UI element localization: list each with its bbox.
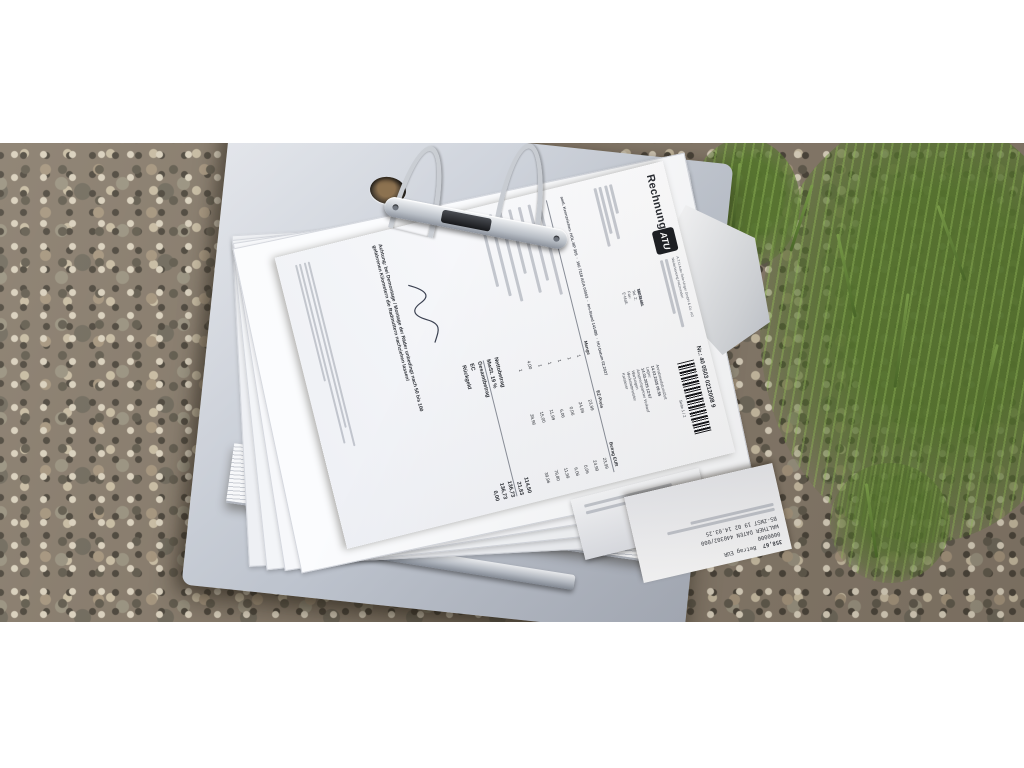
total-label: Nettobetrag <box>491 356 506 388</box>
item-amount: 0,06 <box>568 415 590 475</box>
item-qty: 1 <box>545 323 562 364</box>
item-amount: 79,80 <box>539 422 561 482</box>
item-amount: 24,99 <box>577 412 599 472</box>
total-mwst: MwSt. 19 % 21,83 <box>484 358 526 496</box>
folded-paper <box>570 468 713 560</box>
total-netto: Nettobetrag 114,50 <box>491 356 533 494</box>
total-value: 21,83 <box>514 481 525 496</box>
total-label: Rückgeld <box>459 364 473 390</box>
blurred-item-desc <box>499 212 524 302</box>
customer-no-label-text: Kundennr. <box>636 288 645 307</box>
km-value: 141489 <box>591 322 599 336</box>
ec-receipt: 358,67 Betrag EUR 0000000 WALTHER DATEN … <box>624 463 792 583</box>
plate-value: HOL-NP 305 <box>569 232 579 256</box>
meta-annahme-value: 14.03.2025 09:55 <box>650 365 678 459</box>
blurred-text-line <box>660 260 676 314</box>
meta-ansprechpartner: Ansprechpartner Verkauf <box>635 369 663 463</box>
hu-value: 02.2027 <box>601 361 609 376</box>
binder-clamp-bar <box>383 195 569 250</box>
grass-blade <box>732 163 742 228</box>
blurred-item-desc <box>538 202 564 295</box>
item-unit-price: 24,99 <box>564 359 585 414</box>
part-number: 160 7118 AGA 00003 <box>575 260 589 298</box>
blurred-text-line <box>295 265 326 382</box>
blurred-text-line <box>599 187 614 234</box>
blurred-text-line <box>593 188 610 247</box>
meta-block: Annahmedatum/Zeit 14.03.2025 09:55 Lager… <box>621 364 683 467</box>
total-label: EC <box>467 362 477 371</box>
table-header-row: Menge EZ-Preis Betrag EUR <box>546 199 621 472</box>
binder-ring-left <box>388 143 454 238</box>
signature-scribble <box>401 276 445 351</box>
item-qty: 1 <box>554 320 571 361</box>
grass-patch-bottom-right <box>830 463 950 583</box>
blurred-text-line <box>604 185 620 239</box>
meta-fertig-value: 14.03.2025 12:57 <box>640 367 668 461</box>
blurred-item-desc <box>479 216 499 287</box>
col-unit: EZ-Preis <box>586 354 605 409</box>
total-value: 114,50 <box>521 476 533 494</box>
item-unit-price: 23,99 <box>574 357 595 412</box>
blurred-text-line <box>609 184 619 214</box>
sender-line2: Niederlassung Holzminden <box>670 257 694 336</box>
receipt-line-amount: 358,67 Betrag EUR <box>648 537 782 575</box>
receipt-amount-label: Betrag EUR <box>723 544 757 557</box>
grass-blade <box>936 205 966 281</box>
grass-blade <box>789 184 813 252</box>
total-label: MwSt. 19 % <box>484 358 499 389</box>
page-label: Seite 1 / 2 <box>678 399 687 418</box>
blurred-item-desc <box>489 214 512 296</box>
item-row: 1 11,99 11,99 <box>496 211 572 485</box>
meta-kassierer: Kassierer <box>621 372 649 466</box>
customer-no-value: 10771481 <box>636 288 645 306</box>
fax-label: Fax: <box>626 291 648 360</box>
blurred-item-desc <box>508 209 527 274</box>
blurred-text-line <box>667 508 775 536</box>
blurred-text-line <box>690 503 773 525</box>
total-label: Gesamtbetrag <box>475 361 492 399</box>
grass-blade <box>893 293 909 387</box>
plate-label: amtl. Kennzeichen: <box>559 196 573 233</box>
grass-tuft-bottom-center <box>540 543 670 622</box>
sender-line1: A.T.U Auto-Teile-Unger GmbH & Co. KG <box>675 256 699 335</box>
receipt-amount: 358,67 <box>762 538 783 548</box>
meta-annahme-label: Annahmedatum/Zeit <box>655 364 683 458</box>
grass-blade <box>865 483 878 558</box>
blurred-text-line <box>299 264 346 444</box>
binder-ring-right <box>493 143 552 235</box>
binder-bottom-rail <box>318 535 575 590</box>
blurred-text-line <box>584 483 672 508</box>
item-unit-price: 0,06 <box>554 361 575 416</box>
stacked-sheet <box>233 153 754 574</box>
invoice-title: Rechnung <box>644 173 669 230</box>
total-ec: EC 136,73 <box>467 362 509 500</box>
item-qty: 1 <box>535 325 552 366</box>
grass-blade <box>558 563 574 617</box>
item-row: 1 39,96 39,96 <box>477 216 553 490</box>
total-rueckgeld: Rückgeld 0,00 <box>459 364 501 502</box>
customer-no-label: Kundennr. 10771481 <box>641 288 658 356</box>
grass-patch-top-right <box>690 143 800 268</box>
total-value: 136,73 <box>505 480 517 498</box>
recipient-address-block <box>591 183 632 257</box>
col-qty: Menge <box>576 315 591 355</box>
item-row: 1 6,06 6,06 <box>506 209 582 483</box>
receipt-line: 0000000 <box>647 529 781 567</box>
item-qty: 1 <box>506 332 523 373</box>
blurred-text-line <box>308 261 356 446</box>
meta-werkstattmeister: Werkstattmeister <box>626 371 654 465</box>
tel2-label: Tel. 2: <box>631 289 653 358</box>
atu-logo: ATU <box>652 227 679 256</box>
invoice-number: Nr.: 40 0503 0212008 9 <box>695 345 716 408</box>
total-gesamt: Gesamtbetrag 136,73 <box>475 360 518 498</box>
grass-blade <box>595 553 608 613</box>
item-qty: 1 <box>564 318 581 359</box>
binder-clamp-slider <box>440 209 492 231</box>
receipt-line: WALTHER DATEN 440302/000 <box>645 521 779 559</box>
stacked-sheet <box>233 171 741 571</box>
meta-wartungen: Wartungen <box>631 370 659 464</box>
binder-grip-hole <box>368 175 407 207</box>
blurred-text-line <box>665 259 685 328</box>
grass-blade <box>974 344 999 432</box>
meta-lager-label: Lager: <box>645 366 673 460</box>
item-amount: 11,99 <box>548 420 570 480</box>
invoice-page: Rechnung ATU A.T.U Auto-Teile-Unger GmbH… <box>275 161 736 549</box>
item-amount: 39,96 <box>529 424 551 484</box>
warning-text: Achtung: bei Demontage / Montage der Räd… <box>371 243 429 430</box>
paper-stack-edge <box>226 443 662 563</box>
totals-block: Nettobetrag 114,50 MwSt. 19 % 21,83 Gesa… <box>459 356 533 502</box>
stacked-sheet <box>232 192 726 570</box>
hu-label: HU-Datum <box>595 341 605 361</box>
sender-address: A.T.U Auto-Teile-Unger GmbH & Co. KG Nie… <box>657 256 698 339</box>
item-row: 1 0,06 0,06 <box>516 206 592 480</box>
blurred-item-desc <box>528 204 550 280</box>
blurred-text-line <box>304 262 347 427</box>
clamp-rivet <box>392 204 399 211</box>
receipt-line: BS-ZWST 19 02 14.03.25 <box>643 514 777 552</box>
item-amount: 23,99 <box>587 410 609 470</box>
customer-block: Kundennr. 10771481 Tel. 1: Tel. 2: Fax: … <box>621 288 657 361</box>
col-amount: Betrag EUR <box>599 407 619 467</box>
stacked-sheet <box>232 211 711 567</box>
grass-patch-right <box>760 143 1024 543</box>
clamp-rivet <box>553 235 560 242</box>
item-qty: 4,00 <box>516 330 533 371</box>
item-unit-price: 39,96 <box>516 371 537 426</box>
email-label: E-Mail: <box>621 292 643 361</box>
item-unit-price: 11,99 <box>535 366 556 421</box>
item-unit-price: 6,06 <box>545 364 566 419</box>
col-desc <box>547 199 582 317</box>
photo-area: Rechnung ATU A.T.U Auto-Teile-Unger GmbH… <box>0 143 1024 622</box>
footer-smallprint <box>293 261 361 460</box>
grass-blade <box>836 234 857 318</box>
blurred-item-desc <box>518 207 542 293</box>
total-value: 0,00 <box>491 490 501 502</box>
item-unit-price: 15,00 <box>525 369 546 424</box>
ring-binder-cover <box>182 143 734 622</box>
total-value: 136,73 <box>497 482 509 500</box>
tel1-label: Tel. 1: <box>636 288 658 357</box>
invoice-barcode <box>677 359 711 435</box>
item-amount: 6,06 <box>558 417 580 477</box>
crumpled-paper-corner <box>662 205 770 355</box>
item-row: 1 23,99 23,99 <box>535 201 611 475</box>
vehicle-line: amtl. Kennzeichen: HOL-NP 305 · 160 7118… <box>559 196 632 469</box>
km-label: km-Stand <box>586 303 595 322</box>
item-qty: 1 <box>525 327 542 368</box>
item-row: 4,00 15,00 79,80 <box>487 213 563 487</box>
blurred-text-line <box>586 495 655 515</box>
item-row: 1 24,99 24,99 <box>525 204 601 478</box>
